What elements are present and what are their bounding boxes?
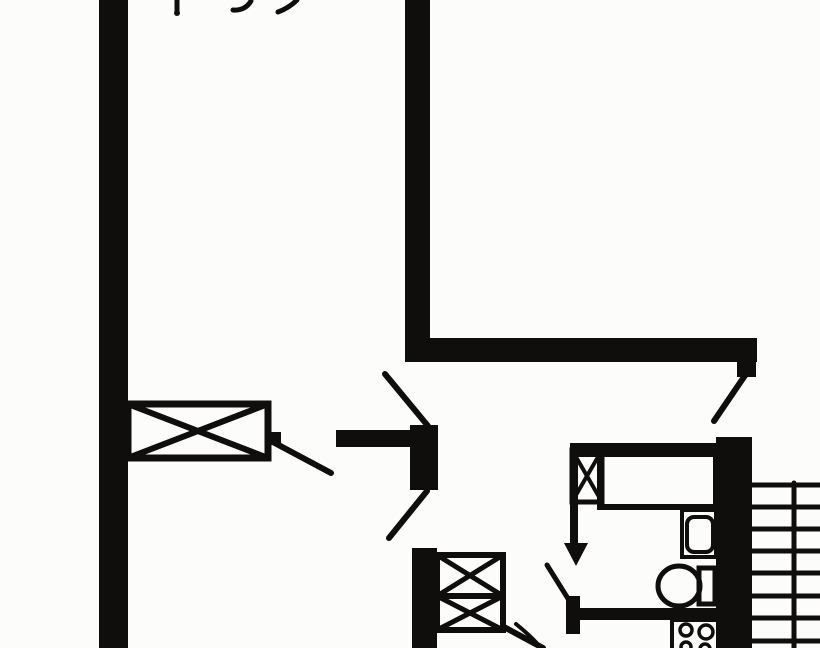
right-wall bbox=[716, 437, 752, 648]
entry-hall-wall-horizontal bbox=[405, 338, 757, 362]
toilet-bowl bbox=[658, 566, 700, 606]
center-door-post bbox=[410, 425, 438, 490]
stove-burner bbox=[680, 624, 692, 636]
entry-hall-wall-vertical bbox=[405, 0, 430, 362]
top-door-tick-dot bbox=[174, 10, 180, 16]
left-wall bbox=[99, 0, 128, 648]
living-room-upper-door-leaf bbox=[385, 374, 428, 426]
floor-plan-svg bbox=[0, 0, 820, 648]
stove-burner bbox=[700, 644, 710, 648]
bathtub bbox=[600, 450, 716, 507]
stove-burner bbox=[681, 642, 691, 648]
stair-door-leaf bbox=[714, 374, 746, 421]
washbasin-bowl bbox=[687, 517, 713, 552]
top-swing-arc-left bbox=[233, 1, 251, 10]
hallway-bottom-wall bbox=[412, 548, 437, 648]
top-swing-arc-right bbox=[278, 0, 297, 12]
toilet-tank bbox=[699, 568, 715, 604]
stove-burner bbox=[699, 625, 713, 639]
entry-direction-arrow bbox=[564, 543, 588, 566]
floor-plan-page bbox=[0, 0, 820, 648]
living-room-door-leaf bbox=[271, 441, 331, 473]
bathroom-door-leaf bbox=[547, 565, 572, 605]
living-room-lower-door-leaf bbox=[389, 491, 427, 538]
living-room-wall-stub bbox=[336, 430, 410, 447]
